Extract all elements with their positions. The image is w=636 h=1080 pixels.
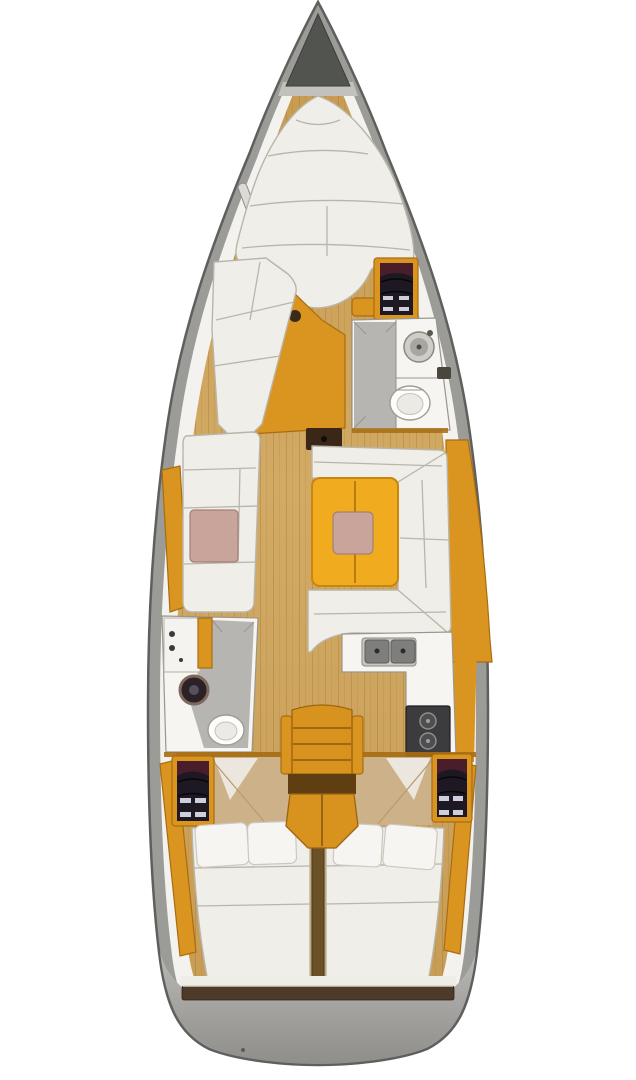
folded-linen <box>383 296 393 300</box>
folded-linen <box>439 810 449 815</box>
forward-storage-shelves <box>374 258 418 320</box>
head-threshold <box>352 428 448 433</box>
deck-latch-icon <box>437 367 451 379</box>
faucet-knob-icon <box>169 631 175 637</box>
steps-treads <box>292 705 352 774</box>
aft-storage-shelves-port <box>172 756 214 826</box>
folded-linen <box>383 307 393 311</box>
pillow-icon <box>195 822 250 868</box>
floor-plan-stage <box>0 0 636 1080</box>
sink-drain <box>417 345 422 350</box>
yacht-floor-plan <box>0 0 636 1080</box>
sink-drain <box>375 649 380 654</box>
folded-linen <box>195 798 206 803</box>
toilet-bowl <box>397 394 423 415</box>
pillow-icon <box>382 824 437 870</box>
steps-rail <box>352 716 363 774</box>
sink-drain <box>401 649 406 654</box>
table-center-pad <box>333 512 373 554</box>
folded-linen <box>453 810 463 815</box>
port-settee-cushion <box>190 510 238 562</box>
door-handle-icon <box>321 436 327 442</box>
faucet-knob-icon <box>169 645 175 651</box>
burner-center <box>426 719 430 723</box>
folded-linen <box>195 812 206 817</box>
steps-riser <box>288 774 356 794</box>
steps-rail <box>281 716 292 774</box>
aft-head-shelf <box>198 618 212 668</box>
companionway-steps <box>281 705 363 848</box>
bow <box>278 6 358 96</box>
folded-linen <box>439 796 449 801</box>
aft-head <box>162 616 258 752</box>
aft-storage-shelves-starboard <box>432 754 472 822</box>
faucet-knob-icon <box>179 658 183 662</box>
round-sink-center <box>189 685 199 695</box>
berth-step-box <box>352 298 376 316</box>
deck-fitting-icon <box>241 1048 245 1052</box>
forward-head <box>352 318 451 433</box>
folded-linen <box>399 296 409 300</box>
folded-linen <box>180 812 191 817</box>
folded-linen <box>180 798 191 803</box>
transom-step <box>182 986 454 1000</box>
folded-linen <box>453 796 463 801</box>
faucet-icon <box>427 330 433 336</box>
forward-head-shower-floor <box>354 322 396 428</box>
toilet-bowl <box>215 722 237 740</box>
folded-linen <box>399 307 409 311</box>
aft-head-sink-panel <box>164 618 200 672</box>
burner-center <box>426 739 430 743</box>
forward-cabin <box>212 96 451 450</box>
